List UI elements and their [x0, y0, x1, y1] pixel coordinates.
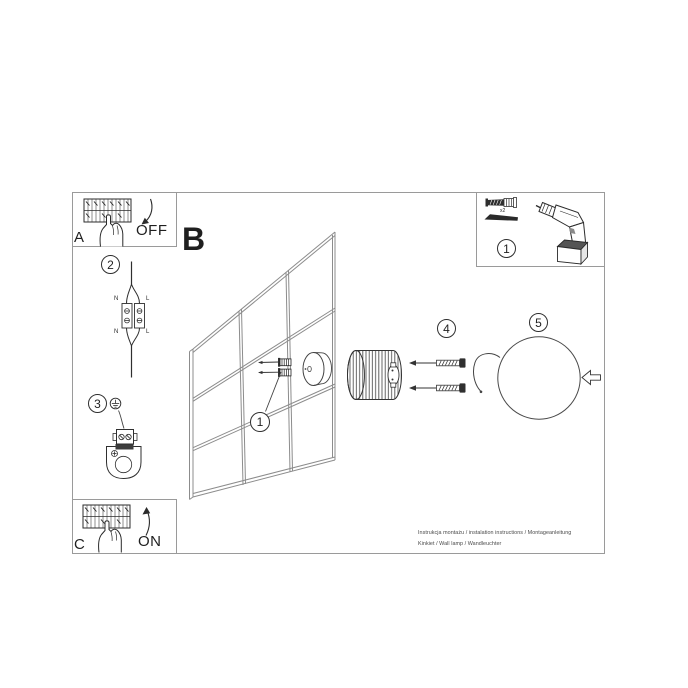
footer-line-2: Kinkiet / Wall lamp / Wandleuchter: [418, 541, 501, 547]
callout-4-screws: 4: [437, 319, 456, 338]
on-label: ON: [138, 533, 162, 550]
callout-2-connector: 2: [101, 255, 120, 274]
on-arrow-icon: [143, 507, 151, 536]
diffuser-sphere: [498, 337, 580, 419]
screw-icon: [409, 383, 466, 392]
callout-1-tools: 1: [497, 239, 516, 258]
off-label: OFF: [136, 222, 168, 239]
terminal-n-bottom: N: [114, 329, 118, 335]
terminal-l-top: L: [146, 296, 149, 302]
push-arrow-icon: [582, 371, 601, 385]
earth-symbol-icon: [110, 398, 121, 409]
hook-icon: [474, 354, 500, 394]
callout-5-diffuser: 5: [529, 313, 548, 332]
terminal-n-top: N: [114, 296, 118, 302]
step-b-letter: B: [182, 221, 205, 258]
drill-bit-icon: [485, 214, 519, 221]
wire-connector-icon: [122, 262, 145, 378]
instruction-sheet: A OFF B C ON 2 3 1 4 5 1 N L N L x2 Inst…: [0, 0, 688, 688]
shade-icon: [348, 351, 402, 400]
step-a-letter: A: [74, 229, 84, 246]
anchor-screw-icon: [486, 198, 517, 208]
mounting-bracket-icon: [107, 411, 142, 479]
wall-plug-icon: [258, 358, 291, 412]
screw-icon: [409, 358, 466, 367]
base-ring-icon: [303, 353, 332, 386]
callout-3-bracket: 3: [88, 394, 107, 413]
drill-icon: [536, 203, 588, 265]
terminal-l-bottom: L: [146, 329, 149, 335]
step-c-letter: C: [74, 536, 85, 553]
diagram-art: [0, 0, 688, 688]
off-arrow-icon: [142, 199, 152, 225]
footer-line-1: Instrukcja montażu / instalation instruc…: [418, 530, 571, 536]
anchor-qty-label: x2: [500, 208, 505, 214]
callout-1-base: 1: [250, 412, 270, 432]
